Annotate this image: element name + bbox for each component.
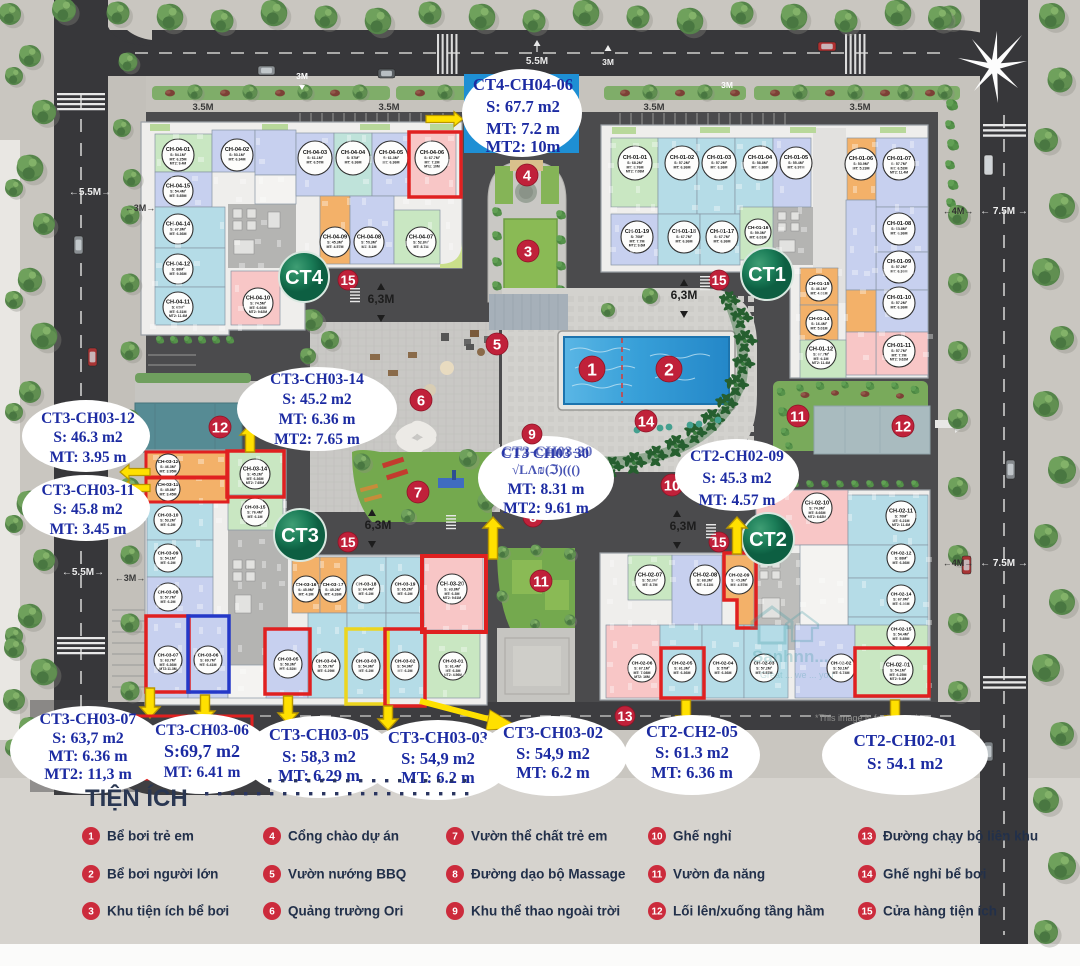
svg-text:CH-04-07: CH-04-07	[409, 234, 433, 240]
svg-text:S: 54,9 m2: S: 54,9 m2	[516, 744, 590, 763]
svg-text:CH-03-19: CH-03-19	[395, 582, 416, 588]
svg-text:CH-04-10: CH-04-10	[246, 295, 270, 301]
svg-text:S: 63.7M²: S: 63.7M²	[160, 659, 177, 663]
svg-text:CH-02-11: CH-02-11	[889, 508, 913, 514]
svg-text:S: 53.2M²: S: 53.2M²	[160, 519, 177, 523]
svg-text:CH-03-09: CH-03-09	[158, 551, 179, 557]
svg-text:MT2: 11.4M: MT2: 11.4M	[892, 523, 910, 527]
svg-text:CH-01-04: CH-01-04	[748, 155, 773, 161]
svg-text:S: 45.3M²: S: 45.3M²	[327, 240, 344, 244]
svg-text:S: 64.4M²: S: 64.4M²	[358, 588, 375, 592]
svg-text:CH-01-01: CH-01-01	[623, 155, 647, 161]
svg-text:MT2: 9.62M: MT2: 9.62M	[249, 310, 267, 314]
svg-text:MT: 6.57M: MT: 6.57M	[307, 160, 324, 164]
svg-text:MT: 6.36M: MT: 6.36M	[711, 165, 728, 169]
svg-text:CT4: CT4	[285, 267, 324, 289]
svg-text:CT3-CH03-14: CT3-CH03-14	[270, 371, 364, 388]
svg-text:MT: 6.2M: MT: 6.2M	[359, 592, 374, 596]
svg-text:MT: 5.23M: MT: 5.23M	[853, 167, 870, 171]
svg-text:S: 67.7M²: S: 67.7M²	[676, 235, 693, 239]
svg-text:CT2-CH02-09: CT2-CH02-09	[690, 448, 784, 465]
svg-text:CH-01-05: CH-01-05	[784, 155, 808, 161]
svg-text:CH-02-10: CH-02-10	[805, 500, 829, 506]
svg-text:CH-02-14: CH-02-14	[891, 592, 912, 598]
svg-text:MT2: 11.4M: MT2: 11.4M	[890, 171, 908, 175]
svg-text:CH-02-05: CH-02-05	[672, 661, 693, 667]
svg-text:13: 13	[617, 709, 633, 724]
svg-text:15: 15	[861, 907, 873, 918]
svg-text:MT: 6.36 m: MT: 6.36 m	[279, 411, 356, 428]
svg-text:4: 4	[269, 832, 275, 843]
svg-text:MT: 4.3M: MT: 4.3M	[299, 592, 314, 596]
svg-text:MT: 6.36M: MT: 6.36M	[674, 671, 691, 675]
svg-text:MT2: 9.61 m: MT2: 9.61 m	[503, 500, 589, 517]
svg-text:S: 61.4M²: S: 61.4M²	[445, 665, 462, 669]
svg-text:MT: 6.2 m: MT: 6.2 m	[401, 768, 475, 787]
svg-text:CT3-CH03-02: CT3-CH03-02	[503, 723, 603, 742]
svg-text:Great ... we ... you: Great ... we ... you	[760, 670, 834, 680]
svg-text:MT2: 10M: MT2: 10M	[424, 164, 440, 168]
svg-text:MT: 6.2M: MT: 6.2M	[398, 592, 413, 596]
svg-text:CT3-CH03-05: CT3-CH03-05	[269, 725, 369, 744]
svg-text:S: 67.7 m2: S: 67.7 m2	[486, 97, 560, 116]
svg-text:CH-02-04: CH-02-04	[713, 661, 734, 667]
svg-text:3: 3	[88, 907, 94, 918]
svg-text:Quảng trường Ori: Quảng trường Ori	[288, 904, 403, 919]
svg-text:MT: 6.36M: MT: 6.36M	[170, 232, 187, 236]
svg-text:MT: 8.7M: MT: 8.7M	[643, 583, 658, 587]
svg-text:MT: 5.01M: MT: 5.01M	[811, 326, 828, 330]
svg-text:CH-02-09: CH-02-09	[729, 573, 750, 579]
svg-text:15: 15	[340, 535, 356, 550]
svg-text:1: 1	[587, 359, 597, 379]
svg-text:CH-02-15: CH-02-15	[891, 627, 912, 633]
svg-text:Vườn nướng BBQ: Vườn nướng BBQ	[288, 867, 406, 882]
svg-text:S: 54.9M²: S: 54.9M²	[358, 665, 375, 669]
svg-text:S: 74.5M²: S: 74.5M²	[250, 301, 267, 305]
svg-text:CT3-CH03-20: CT3-CH03-20	[502, 444, 593, 460]
svg-text:15: 15	[711, 273, 727, 288]
svg-text:MT: 6.29M: MT: 6.29M	[318, 669, 335, 673]
svg-text:MT: 6.34M: MT: 6.34M	[229, 158, 246, 162]
svg-text:CT1: CT1	[748, 264, 786, 286]
svg-text:S: 54,9 m2: S: 54,9 m2	[401, 749, 475, 768]
svg-text:CH-01-07: CH-01-07	[887, 156, 911, 162]
svg-text:11: 11	[652, 870, 663, 881]
svg-text:←3M→: ←3M→	[125, 203, 156, 213]
svg-text:MT: 6.36M: MT: 6.36M	[893, 561, 910, 565]
svg-text:MT2: 11,3 m: MT2: 11,3 m	[44, 766, 132, 783]
svg-text:3.5M: 3.5M	[192, 102, 213, 113]
svg-text:S: 46.3M²: S: 46.3M²	[160, 465, 177, 469]
svg-text:CH-03-03: CH-03-03	[356, 659, 377, 665]
svg-text:Ghế nghỉ: Ghế nghỉ	[673, 829, 732, 844]
svg-text:CH-02-12: CH-02-12	[891, 551, 912, 557]
svg-text:CT3-CH03-06: CT3-CH03-06	[155, 722, 249, 739]
svg-text:S: 68.3M²: S: 68.3M²	[697, 578, 714, 582]
svg-text:MT2: 9.62M: MT2: 9.62M	[890, 358, 908, 362]
svg-text:MT2: 7.65M: MT2: 7.65M	[246, 481, 264, 485]
svg-text:MT: 5.85M: MT: 5.85M	[170, 194, 187, 198]
svg-text:S: 69.7M²: S: 69.7M²	[200, 659, 217, 663]
svg-text:CH-01-10: CH-01-10	[887, 295, 911, 301]
svg-text:10: 10	[651, 832, 663, 843]
svg-text:2: 2	[88, 870, 94, 881]
svg-text:Bể bơi người lớn: Bể bơi người lớn	[107, 867, 218, 882]
svg-text:Vườn đa năng: Vườn đa năng	[673, 867, 765, 882]
svg-text:S: 57.7M²: S: 57.7M²	[160, 596, 177, 600]
svg-text:CT2: CT2	[749, 529, 787, 551]
svg-text:MT: 6.1M: MT: 6.1M	[248, 515, 263, 519]
svg-text:MT: 6.74M: MT: 6.74M	[833, 671, 850, 675]
svg-text:MT: 9.36M: MT: 9.36M	[170, 272, 187, 276]
svg-text:CH-01-12: CH-01-12	[809, 346, 833, 352]
svg-text:MT: 6.36M: MT: 6.36M	[676, 240, 693, 244]
svg-text:CH-01-19: CH-01-19	[625, 229, 649, 235]
svg-text:6,3M: 6,3M	[368, 292, 395, 306]
svg-text:S: 45.2M²: S: 45.2M²	[247, 472, 264, 476]
svg-text:Vườn thể chất trẻ em: Vườn thể chất trẻ em	[471, 829, 607, 844]
svg-text:MT: 4.26M: MT: 4.26M	[325, 592, 342, 596]
svg-text:MT2: 16M: MT2: 16M	[634, 675, 650, 679]
svg-text:Khu tiện ích bể bơi: Khu tiện ích bể bơi	[107, 904, 229, 919]
svg-text:←4M→: ←4M→	[943, 206, 974, 216]
svg-text:6,3M: 6,3M	[365, 518, 392, 532]
svg-text:Đường chạy bộ liên khu: Đường chạy bộ liên khu	[883, 829, 1038, 844]
svg-text:S: 88M²: S: 88M²	[172, 267, 186, 271]
svg-text:5.5M: 5.5M	[526, 56, 548, 67]
svg-text:MT: 3.95M: MT: 3.95M	[160, 470, 177, 474]
svg-text:S: 74.9M²: S: 74.9M²	[809, 506, 826, 510]
svg-text:CH-04-14: CH-04-14	[166, 221, 191, 227]
svg-text:MT2: 7.08M: MT2: 7.08M	[626, 169, 644, 173]
svg-text:MT: 3.45 m: MT: 3.45 m	[50, 521, 127, 538]
svg-text:S: 61.3 m2: S: 61.3 m2	[655, 743, 729, 762]
svg-text:CT3-CH03-12: CT3-CH03-12	[41, 410, 135, 427]
svg-text:CH-03-01: CH-03-01	[443, 659, 464, 665]
svg-text:12: 12	[895, 419, 912, 435]
svg-text:MT: 6.41M: MT: 6.41M	[200, 663, 217, 667]
svg-text:CH-03-07: CH-03-07	[158, 653, 179, 659]
svg-text:CH-04-02: CH-04-02	[225, 147, 249, 153]
svg-text:S: 53.1M²: S: 53.1M²	[833, 667, 850, 671]
svg-text:←3M→: ←3M→	[115, 573, 146, 583]
svg-text:MT2: 9.4M: MT2: 9.4M	[170, 162, 187, 166]
svg-text:S: 67.7M²: S: 67.7M²	[714, 235, 731, 239]
svg-text:13: 13	[861, 832, 873, 843]
svg-text:MT: 6.36M: MT: 6.36M	[345, 160, 362, 164]
svg-text:5: 5	[493, 337, 501, 353]
svg-text:S: 57M²: S: 57M²	[717, 667, 731, 671]
svg-text:S: 57.2M²: S: 57.2M²	[674, 161, 691, 165]
svg-text:S: 45.8M²: S: 45.8M²	[160, 488, 177, 492]
svg-text:Đường dạo bộ Massage: Đường dạo bộ Massage	[471, 867, 626, 882]
svg-text:S: 53.9M²: S: 53.9M²	[853, 162, 870, 166]
svg-text:MT: 6.2M: MT: 6.2M	[359, 669, 374, 673]
svg-text:15: 15	[340, 273, 356, 288]
svg-text:MT2: 10m: MT2: 10m	[486, 137, 561, 156]
svg-text:4: 4	[523, 168, 532, 184]
svg-text:MT: 6.11M: MT: 6.11M	[697, 583, 714, 587]
svg-text:CH-01-03: CH-01-03	[707, 155, 731, 161]
svg-text:12: 12	[212, 420, 229, 436]
svg-text:S: 58.3M²: S: 58.3M²	[280, 663, 297, 667]
svg-text:2: 2	[664, 359, 674, 379]
svg-text:CH-03-12: CH-03-12	[158, 459, 179, 465]
svg-text:CT3-CH03-07: CT3-CH03-07	[40, 711, 137, 728]
svg-text:CH-01-11: CH-01-11	[887, 343, 911, 349]
svg-text:CH-04-05: CH-04-05	[379, 150, 403, 156]
svg-text:14: 14	[861, 870, 873, 881]
svg-text:11: 11	[533, 574, 549, 590]
svg-text:CH-04-09: CH-04-09	[323, 234, 347, 240]
svg-text:←5.5M→: ←5.5M→	[62, 567, 104, 578]
svg-text:9: 9	[452, 907, 458, 918]
svg-text:MT2:11.3M: MT2:11.3M	[159, 667, 176, 671]
svg-text:S: 57M²: S: 57M²	[347, 156, 361, 160]
svg-text:S: 53.1M²: S: 53.1M²	[229, 153, 246, 157]
svg-text:←5.5M→: ←5.5M→	[69, 187, 111, 198]
svg-text:Sanhnn...: Sanhnn...	[752, 647, 829, 666]
svg-text:S: 55.4M²: S: 55.4M²	[788, 161, 805, 165]
svg-text:MT: 4.57M: MT: 4.57M	[327, 245, 344, 249]
svg-text:CT3: CT3	[281, 525, 319, 547]
svg-text:S: 54.1 m2: S: 54.1 m2	[867, 754, 943, 773]
svg-text:S: 57.2M²: S: 57.2M²	[891, 301, 908, 305]
svg-text:3.5M: 3.5M	[643, 102, 664, 113]
svg-text:MT: 6.36 m: MT: 6.36 m	[651, 763, 733, 782]
svg-text:Cửa hàng tiện ích: Cửa hàng tiện ích	[883, 904, 997, 919]
svg-text:MT: 6.36 m: MT: 6.36 m	[48, 748, 128, 765]
svg-text:MT: 6.36M: MT: 6.36M	[714, 240, 731, 244]
svg-text:CT3-CH03-11: CT3-CH03-11	[42, 482, 135, 499]
svg-text:3.5M: 3.5M	[378, 102, 399, 113]
svg-text:Khu thể thao ngoài trời: Khu thể thao ngoài trời	[471, 904, 620, 919]
svg-text:6,3M: 6,3M	[671, 288, 698, 302]
svg-text:CH-04-08: CH-04-08	[357, 234, 381, 240]
svg-text:MT: 6.2M: MT: 6.2M	[161, 561, 176, 565]
svg-text:12: 12	[651, 907, 663, 918]
svg-text:S: 54.1M²: S: 54.1M²	[170, 153, 187, 157]
svg-text:CH-01-16: CH-01-16	[748, 225, 769, 231]
svg-text:S: 45.9M²: S: 45.9M²	[298, 588, 315, 592]
svg-text:MT: 3.95 m: MT: 3.95 m	[50, 449, 127, 466]
svg-text:CT2-CH2-05: CT2-CH2-05	[646, 722, 738, 741]
svg-text:S: 57.2M²: S: 57.2M²	[711, 161, 728, 165]
svg-text:S: 54.4M²: S: 54.4M²	[170, 189, 187, 193]
svg-text:S: 54.4M²: S: 54.4M²	[893, 633, 910, 637]
svg-text:1: 1	[88, 832, 94, 843]
svg-text:S: 88M²: S: 88M²	[895, 557, 909, 561]
svg-text:9: 9	[528, 427, 536, 442]
svg-text:CH-01-06: CH-01-06	[849, 156, 873, 162]
svg-text:S: 61.1M²: S: 61.1M²	[307, 156, 324, 160]
svg-text:MT: 6.36M: MT: 6.36M	[891, 306, 908, 310]
svg-text:S: 57.7M²: S: 57.7M²	[891, 349, 908, 353]
svg-text:CT4-CH04-06: CT4-CH04-06	[473, 75, 573, 94]
svg-text:S: 45.2M²: S: 45.2M²	[325, 588, 342, 592]
svg-text:CH-01-09: CH-01-09	[887, 259, 911, 265]
svg-text:CH-01-15: CH-01-15	[809, 281, 830, 287]
svg-text:CH-01-14: CH-01-14	[809, 316, 830, 322]
svg-text:CH-04-01: CH-04-01	[166, 147, 190, 153]
svg-text:6: 6	[269, 907, 275, 918]
svg-text:CH-02-08: CH-02-08	[693, 572, 717, 578]
svg-text:MT2: 6.62M: MT2: 6.62M	[808, 515, 826, 519]
svg-text:CH-04-15: CH-04-15	[166, 183, 190, 189]
svg-text:CH-01-08: CH-01-08	[887, 221, 911, 227]
svg-text:MT: 6.2 m: MT: 6.2 m	[516, 763, 590, 782]
svg-text:CH-03-20: CH-03-20	[440, 581, 464, 587]
svg-text:3M: 3M	[721, 80, 733, 90]
svg-text:CH-03-05: CH-03-05	[278, 657, 299, 663]
svg-text:11: 11	[790, 409, 806, 425]
svg-text:S: 16.4M²: S: 16.4M²	[811, 322, 828, 326]
svg-text:14: 14	[638, 414, 655, 430]
svg-text:S: 76.4M²: S: 76.4M²	[247, 511, 264, 515]
svg-text:MT: 3.45M: MT: 3.45M	[160, 493, 177, 497]
svg-text:MT: 7.2 m: MT: 7.2 m	[486, 119, 560, 138]
svg-text:CH-03-06: CH-03-06	[198, 653, 219, 659]
svg-text:S: 58,3 m2: S: 58,3 m2	[282, 747, 356, 766]
svg-text:8: 8	[452, 870, 458, 881]
svg-text:MT2: 9.61M: MT2: 9.61M	[443, 596, 461, 600]
svg-text:MT: 8.31 m: MT: 8.31 m	[508, 481, 585, 498]
svg-text:CH-03-10: CH-03-10	[158, 513, 179, 519]
svg-text:MT: 4.57 m: MT: 4.57 m	[699, 492, 776, 509]
svg-text:MT2: 11.4M: MT2: 11.4M	[169, 314, 187, 318]
svg-text:3M: 3M	[296, 71, 308, 81]
svg-text:5: 5	[269, 870, 275, 881]
svg-text:MT2: 7.65 m: MT2: 7.65 m	[274, 431, 360, 448]
svg-text:S: 67.1M²: S: 67.1M²	[634, 667, 651, 671]
svg-text:S: 65.2M²: S: 65.2M²	[397, 588, 414, 592]
svg-text:S: 68.8M²: S: 68.8M²	[891, 227, 908, 231]
svg-text:MT: 6.36M: MT: 6.36M	[715, 671, 732, 675]
svg-text:7: 7	[452, 832, 458, 843]
svg-text:Ghế nghỉ bể bơi: Ghế nghỉ bể bơi	[883, 867, 986, 882]
svg-text:MT2: 9.4M: MT2: 9.4M	[890, 677, 907, 681]
svg-text:MT2: 11.4M: MT2: 11.4M	[812, 361, 830, 365]
svg-text:CH-02-07: CH-02-07	[638, 572, 662, 578]
svg-text:6,3M: 6,3M	[670, 519, 697, 533]
svg-text:S: 54.1M²: S: 54.1M²	[890, 668, 907, 672]
svg-text:S: 61.3M²: S: 61.3M²	[674, 667, 691, 671]
svg-text:Cổng chào dự án: Cổng chào dự án	[288, 829, 399, 844]
svg-text:S: 55.7M²: S: 55.7M²	[318, 665, 335, 669]
svg-text:CH-03-14: CH-03-14	[243, 466, 268, 472]
svg-text:MT: 5.85M: MT: 5.85M	[893, 637, 910, 641]
svg-text:7: 7	[414, 485, 422, 501]
svg-text:Lối lên/xuống tầng hầm: Lối lên/xuống tầng hầm	[673, 904, 825, 919]
svg-text:S: 67.7M²: S: 67.7M²	[424, 156, 441, 160]
svg-text:CH-04-04: CH-04-04	[341, 150, 366, 156]
svg-text:CH-03-04: CH-03-04	[316, 659, 337, 665]
svg-text:MT: 6.2M: MT: 6.2M	[161, 523, 176, 527]
svg-text:S: 70M²: S: 70M²	[631, 235, 645, 239]
svg-text:CH-04-06: CH-04-06	[420, 150, 444, 156]
svg-text:TIỆN ÍCH: TIỆN ÍCH	[85, 784, 188, 812]
svg-text:S: 54.1M²: S: 54.1M²	[160, 557, 177, 561]
svg-text:CH-01-02: CH-01-02	[670, 155, 694, 161]
svg-text:← 7.5M →: ← 7.5M →	[980, 558, 1028, 569]
svg-text:CT3-CH03-03: CT3-CH03-03	[388, 728, 488, 747]
svg-text:← 7.5M →: ← 7.5M →	[980, 206, 1028, 217]
svg-text:3.5M: 3.5M	[849, 102, 870, 113]
svg-text:S: 59.3M²: S: 59.3M²	[750, 231, 767, 235]
svg-text:3: 3	[524, 244, 532, 260]
svg-text:6: 6	[417, 393, 425, 409]
svg-text:CT2-CH02-01: CT2-CH02-01	[854, 731, 957, 750]
svg-text:S: 45.8 m2: S: 45.8 m2	[53, 501, 123, 518]
svg-text:MT: 6.36M: MT: 6.36M	[674, 165, 691, 169]
svg-text:S:69,7 m2: S:69,7 m2	[164, 741, 240, 761]
svg-text:←4M→: ←4M→	[943, 558, 974, 568]
svg-text:S: 63,7 m2: S: 63,7 m2	[52, 730, 124, 747]
svg-text:Bể bơi trẻ em: Bể bơi trẻ em	[107, 829, 194, 844]
svg-text:S: 57.2M²: S: 57.2M²	[891, 265, 908, 269]
svg-text:3M: 3M	[602, 57, 614, 67]
svg-text:S: 70M²: S: 70M²	[895, 514, 909, 518]
svg-text:MT: 6.01M: MT: 6.01M	[750, 235, 767, 239]
svg-text:S: 46.1M²: S: 46.1M²	[811, 287, 828, 291]
svg-text:CH-03-15: CH-03-15	[245, 505, 266, 511]
svg-text:CH-04-03: CH-04-03	[303, 150, 327, 156]
svg-text:MT: 6.41 m: MT: 6.41 m	[164, 764, 241, 781]
svg-text:S: 45.2 m2: S: 45.2 m2	[282, 391, 352, 408]
svg-text:S: 45.3 m2: S: 45.3 m2	[702, 470, 772, 487]
svg-text:CH-02-06: CH-02-06	[632, 661, 653, 667]
svg-text:CH-03-02: CH-03-02	[395, 659, 416, 665]
svg-text:√LΛ₪(ℑ)(((↎): √LΛ₪(ℑ)(((↎)	[512, 462, 580, 477]
svg-text:MT: 6.2M: MT: 6.2M	[161, 600, 176, 604]
svg-text:S: 46.3 m2: S: 46.3 m2	[53, 429, 123, 446]
